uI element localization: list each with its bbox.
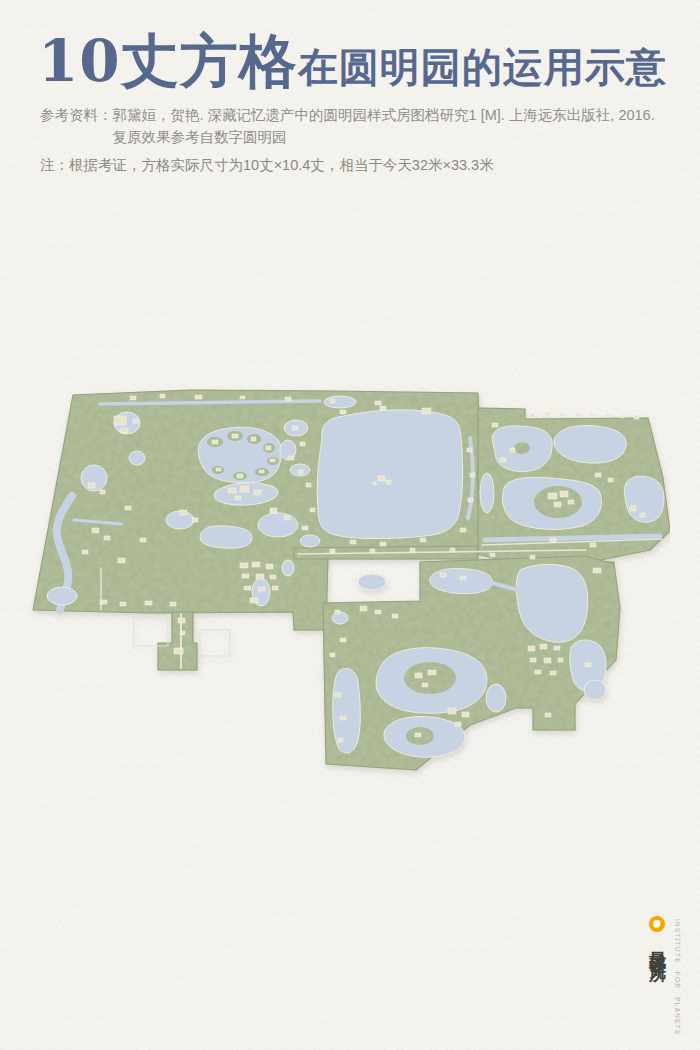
reference-line-2: 复原效果参考自数字圆明园 [113,126,655,148]
title-secondary: 在圆明园的运用示意 [298,43,667,90]
lake-fuhai [317,410,462,539]
title-primary: 10丈方格 [38,27,298,95]
reference-line-1: 郭黛姮，贺艳. 深藏记忆遗产中的圆明园样式房图档研究1 [M]. 上海远东出版社… [113,104,655,126]
changchun-west-islet [514,442,530,454]
grid-square-ghost-1 [134,616,168,646]
brand-name-cn: 星球研究所 [646,937,668,955]
brand-logo: 星球研究所 INSTITUTE FOR PLANETS [646,916,682,1035]
reference-label: 参考资料： [40,104,113,148]
map-root-group [33,390,670,770]
brand-name-en: INSTITUTE FOR PLANETS [672,919,682,1035]
qichun-center-island [404,662,456,694]
planet-icon [649,916,665,932]
buildings-xiyanglou-strip [530,412,639,419]
restoration-map [30,378,670,798]
poster-page: 10丈方格在圆明园的运用示意 参考资料： 郭黛姮，贺艳. 深藏记忆遗产中的圆明园… [0,0,700,1050]
header: 10丈方格在圆明园的运用示意 参考资料： 郭黛姮，贺艳. 深藏记忆遗产中的圆明园… [38,26,668,100]
reference-block: 参考资料： 郭黛姮，贺艳. 深藏记忆遗产中的圆明园样式房图档研究1 [M]. 上… [40,104,680,148]
page-title: 10丈方格在圆明园的运用示意 [38,26,668,100]
yuanmingyuan-map-svg [30,378,670,798]
note-text: 注：根据考证，方格实际尺寸为10丈×10.4丈，相当于今天32米×33.3米 [40,154,494,176]
grid-square-ghost-2 [200,630,230,656]
land-palace-gate-axis [158,612,197,670]
